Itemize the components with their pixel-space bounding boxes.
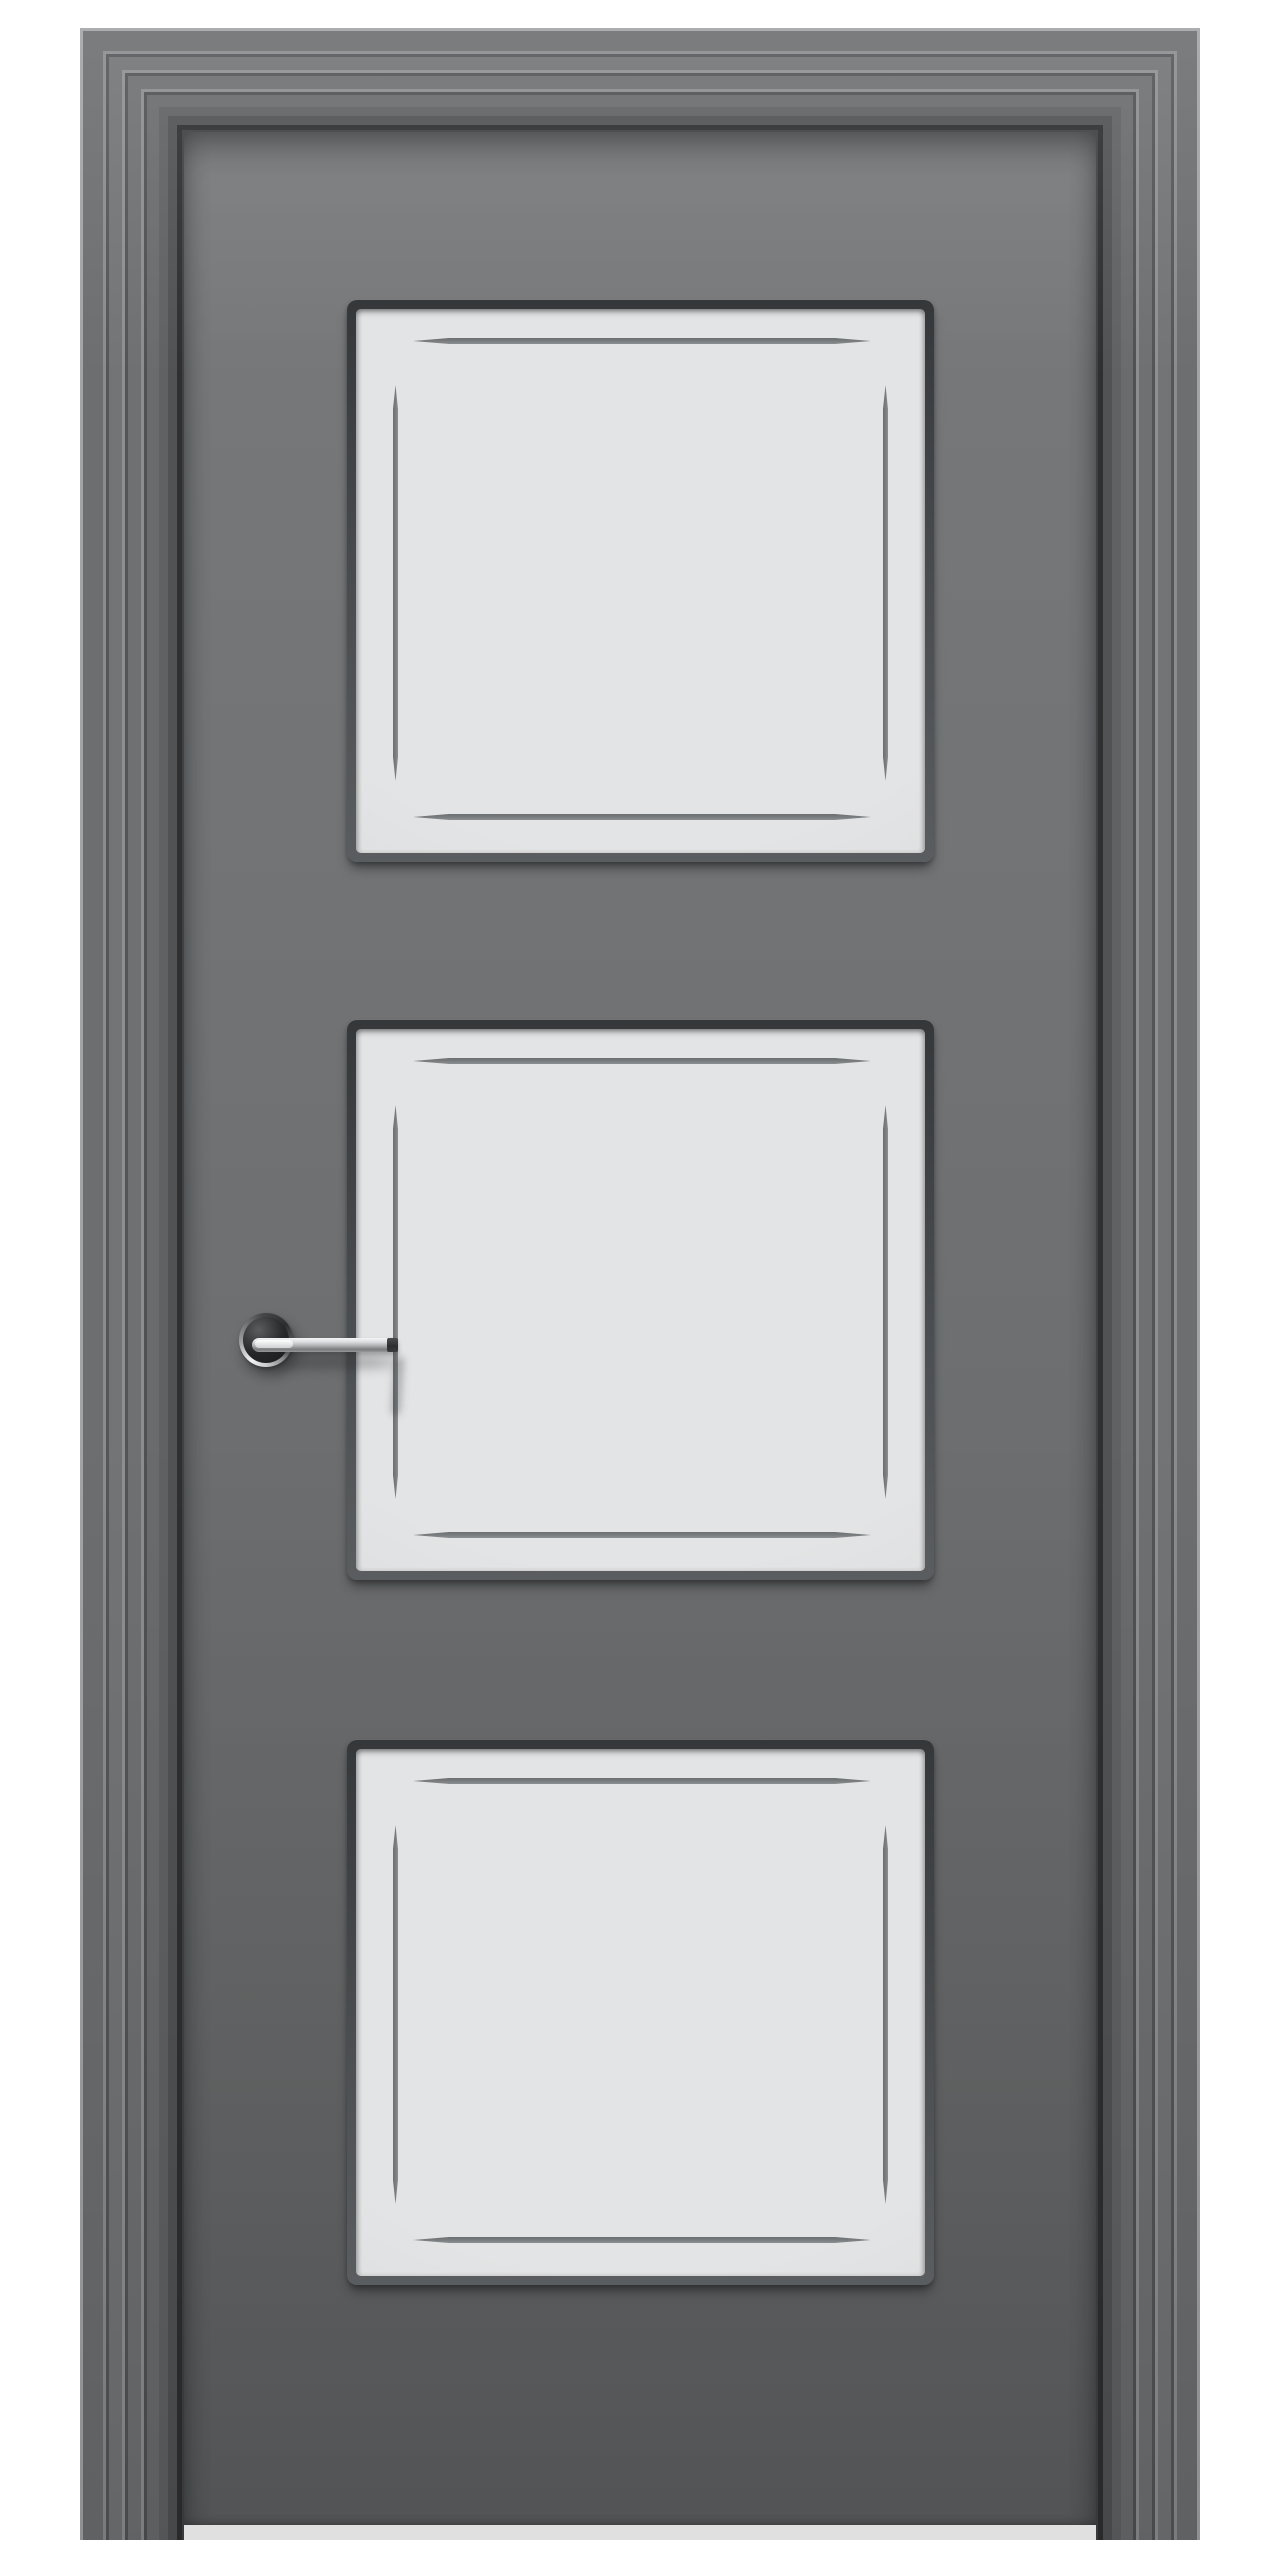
glass-groove-right	[883, 385, 888, 781]
glass-groove-bottom	[413, 814, 871, 820]
glass-groove-left	[393, 1105, 398, 1499]
frosted-glass	[356, 1029, 925, 1571]
frosted-glass	[356, 1749, 925, 2276]
glass-groove-right	[883, 1825, 888, 2204]
glass-panel-2	[347, 1020, 934, 1580]
glass-groove-left	[393, 1825, 398, 2204]
glass-groove-top	[413, 338, 871, 344]
glass-groove-right	[883, 1105, 888, 1499]
glass-groove-left	[393, 385, 398, 781]
glass-panel-3	[347, 1740, 934, 2285]
glass-groove-bottom	[413, 1532, 871, 1538]
panel-bead-frame	[347, 1020, 934, 1580]
panel-bead-frame	[347, 1740, 934, 2285]
glass-panel-1	[347, 300, 934, 862]
panel-bead-frame	[347, 300, 934, 862]
door-scene	[0, 0, 1280, 2560]
glass-groove-top	[413, 1778, 871, 1784]
frosted-glass	[356, 309, 925, 853]
glass-groove-top	[413, 1058, 871, 1064]
glass-groove-bottom	[413, 2237, 871, 2243]
